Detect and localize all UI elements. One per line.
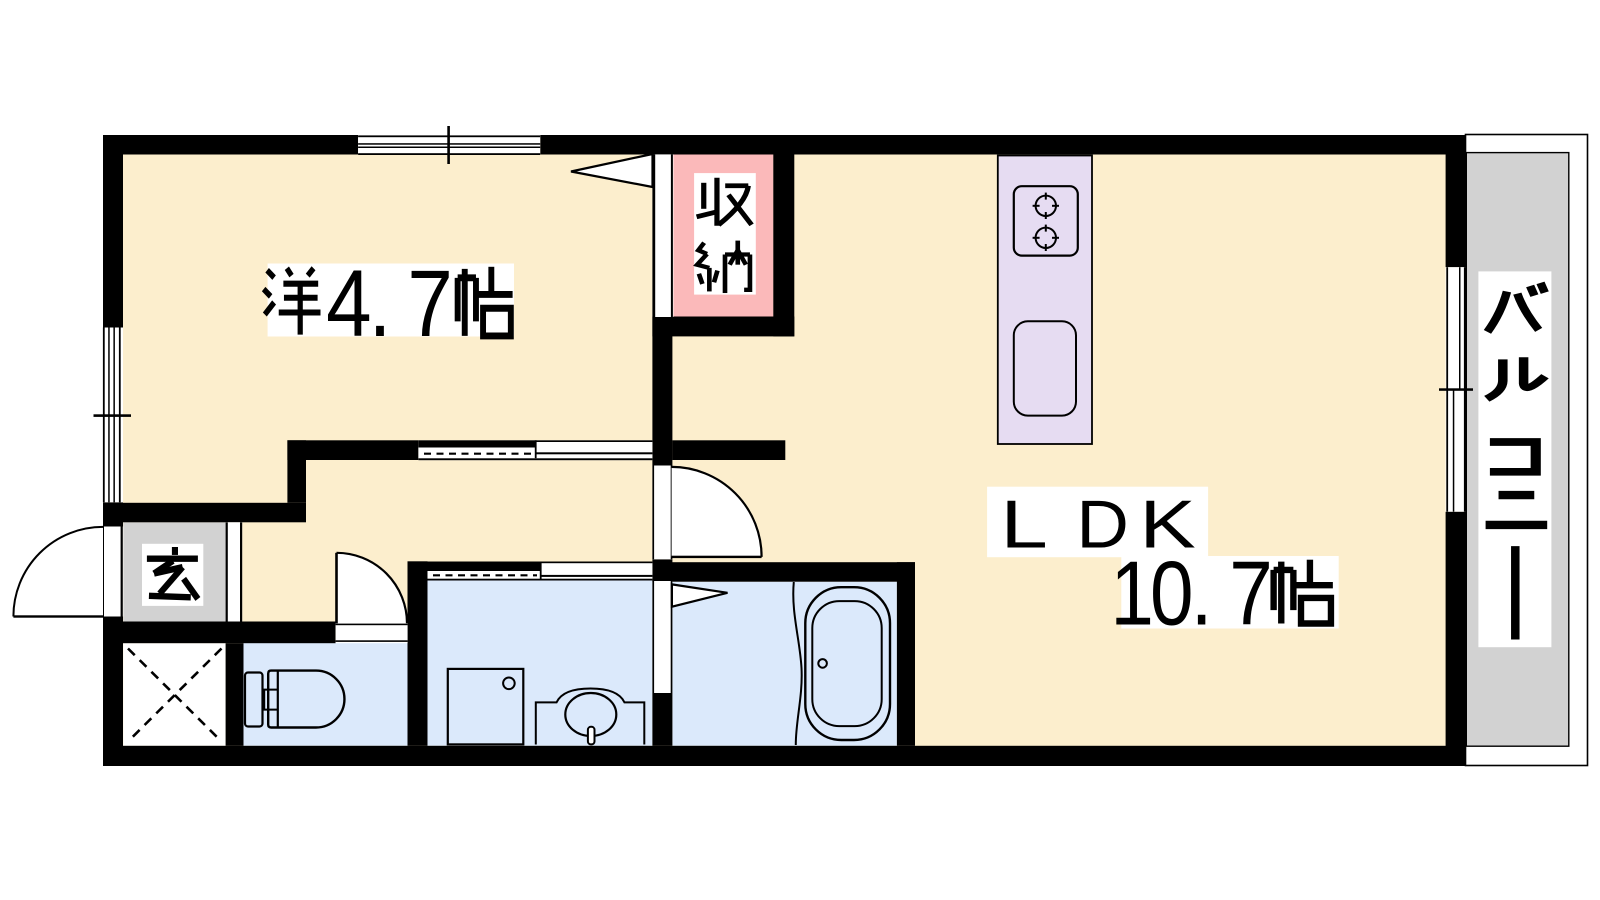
svg-text:.: .	[1191, 542, 1213, 644]
svg-text:7: 7	[1229, 542, 1273, 644]
svg-text:4: 4	[326, 250, 371, 356]
svg-text:L: L	[1001, 487, 1048, 563]
svg-text:.: .	[369, 250, 392, 356]
svg-text:1: 1	[1110, 542, 1154, 644]
svg-text:0: 0	[1150, 542, 1194, 644]
svg-text:7: 7	[407, 250, 452, 356]
